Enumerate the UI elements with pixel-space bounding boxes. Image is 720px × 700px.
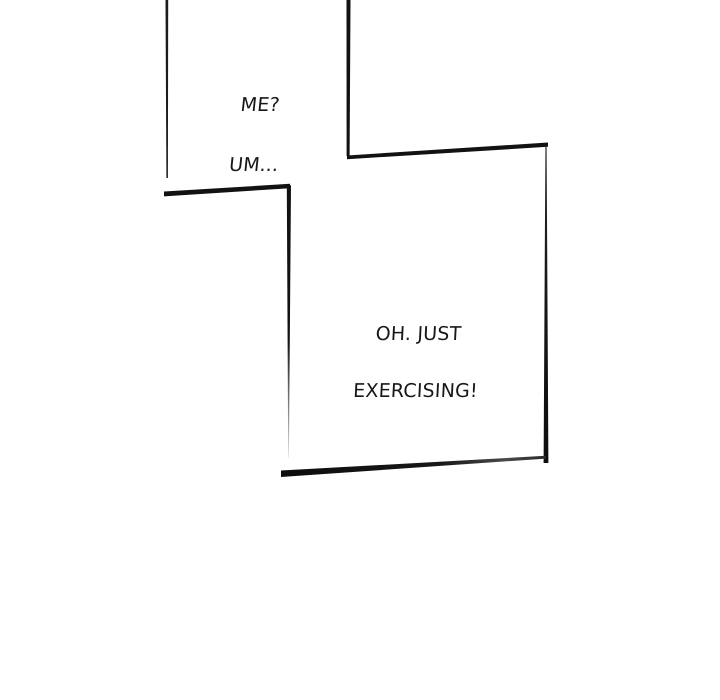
main-panel-bottom-border: [281, 456, 546, 477]
dialogue-line: UM...: [162, 155, 346, 175]
dialogue-line: ME?: [168, 95, 352, 115]
dialogue-line: OH. JUST: [289, 325, 548, 344]
top-panel-dialogue: ME? UM...: [158, 55, 357, 215]
comic-page: ME? UM... OH. JUST EXERCISING!: [0, 0, 720, 700]
main-panel-dialogue: OH. JUST EXERCISING!: [284, 287, 550, 439]
main-panel-top-border: [347, 143, 548, 160]
dialogue-line: EXERCISING!: [286, 382, 545, 401]
